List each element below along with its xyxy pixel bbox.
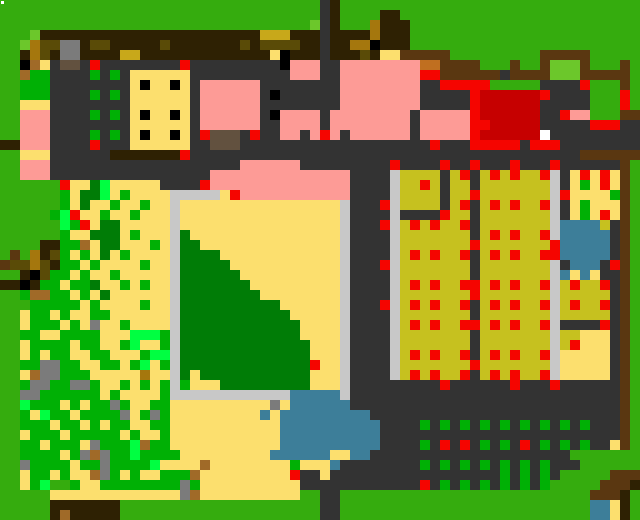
game-map-canvas[interactable] [0,0,640,520]
game-viewport [0,0,640,520]
